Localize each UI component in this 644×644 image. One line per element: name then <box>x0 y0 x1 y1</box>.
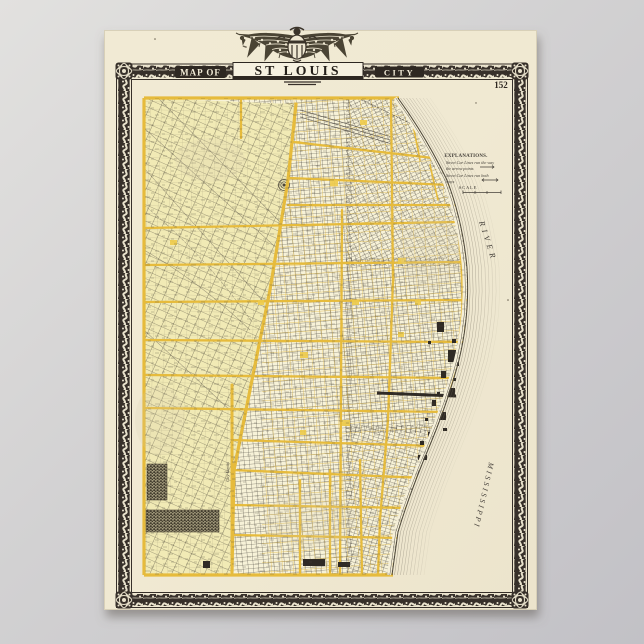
svg-text:ST LOUIS: ST LOUIS <box>254 63 341 78</box>
svg-text:EXPLANATIONS.: EXPLANATIONS. <box>444 154 488 159</box>
svg-text:MAP OF: MAP OF <box>180 68 221 78</box>
svg-text:ways: ways <box>446 179 455 184</box>
svg-text:City Limits: City Limits <box>225 462 230 482</box>
svg-text:CITY: CITY <box>384 67 415 77</box>
svg-text:the arrow points: the arrow points <box>446 166 474 171</box>
svg-text:Street Car Lines run the way: Street Car Lines run the way <box>446 160 494 165</box>
svg-text:SCALE: SCALE <box>459 185 478 190</box>
svg-text:Street Car Lines run both: Street Car Lines run both <box>446 173 489 178</box>
svg-text:152: 152 <box>494 80 508 90</box>
